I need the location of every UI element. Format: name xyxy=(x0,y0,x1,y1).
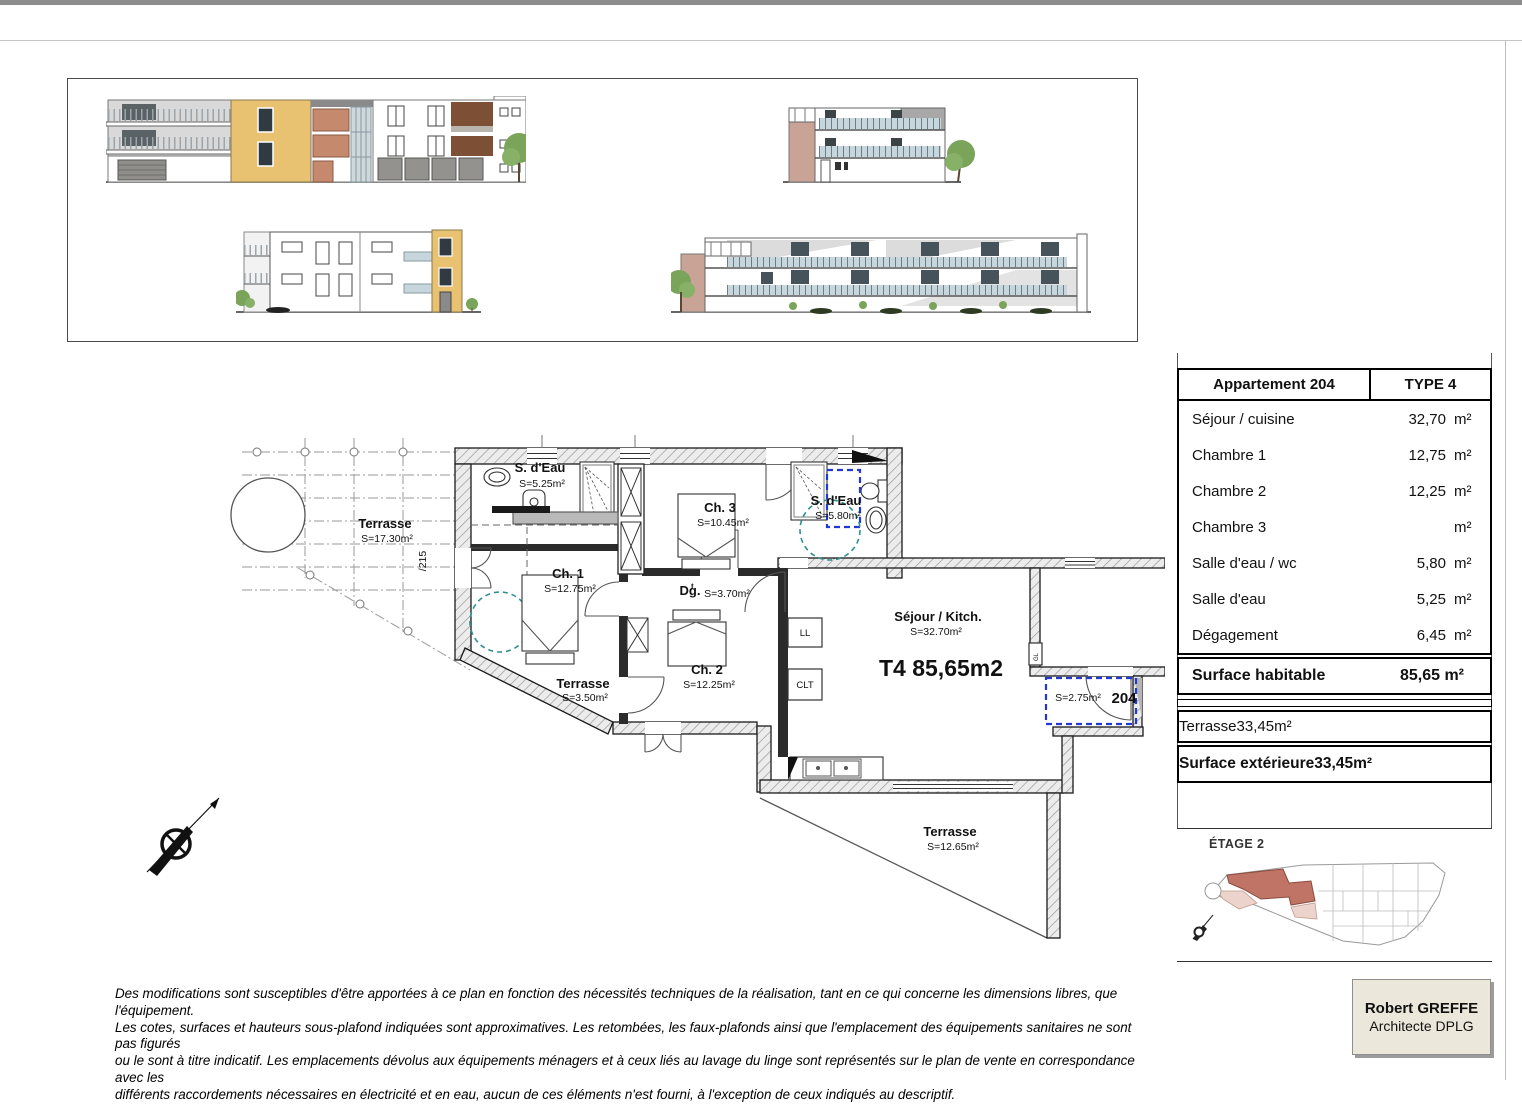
closet-clt-label: CLT xyxy=(796,680,813,691)
floor-plan: Terrasse S=17.30m² /215 S. d'Eau S=5.25m… xyxy=(230,420,1165,965)
turning-circle xyxy=(800,500,860,560)
north-arrow-icon xyxy=(135,788,235,888)
terrace-edge xyxy=(760,798,1047,938)
elevation-north-facade xyxy=(106,96,526,186)
elevation-south-facade xyxy=(236,226,481,316)
sejour-label: Séjour / Kitch. xyxy=(894,609,981,624)
ch2-area: S=12.25m² xyxy=(683,679,735,691)
sdeau1-area: S=5.25m² xyxy=(519,478,565,490)
turning-circle xyxy=(470,592,530,652)
elevation-west-facade xyxy=(671,226,1091,316)
ch3-area: S=10.45m² xyxy=(697,517,749,529)
tree-icon xyxy=(945,140,975,182)
terrasse3-label: Terrasse xyxy=(923,824,976,839)
disclaimer-line: différents raccordements nécessaires en … xyxy=(115,1087,1155,1104)
ch1-label: Ch. 1 xyxy=(552,566,584,581)
floor-label: ÉTAGE 2 xyxy=(1177,829,1492,851)
sheet-top-rule xyxy=(0,40,1522,41)
table-row: Dégagement 6,45 m² xyxy=(1179,617,1490,653)
disclaimer-line: Les cotes, surfaces et hauteurs sous-pla… xyxy=(115,1020,1155,1054)
table-row: Chambre 1 12,75 m² xyxy=(1179,437,1490,473)
terrasse3-area: S=12.65m² xyxy=(927,841,979,853)
surface-habitable-row: Surface habitable 85,65 m² xyxy=(1177,657,1492,695)
architect-plan-sheet: { "areas_table": { "title_left": "Appart… xyxy=(0,0,1522,1080)
disclaimer-line: ou le sont à titre indicatif. Les emplac… xyxy=(115,1053,1155,1087)
table-header: Appartement 204 TYPE 4 xyxy=(1177,368,1492,401)
table-row: Salle d'eau 5,25 m² xyxy=(1179,581,1490,617)
surface-exterieure-row: Surface extérieure 33,45 m² xyxy=(1177,745,1492,783)
elevations-panel xyxy=(67,78,1138,342)
terrace-deck-lines xyxy=(242,438,470,670)
terrace-row: Terrasse 33,45 m² xyxy=(1177,710,1492,743)
architect-name: Robert GREFFE xyxy=(1365,1000,1478,1017)
bed-ch2 xyxy=(668,610,726,666)
table-row: Salle d'eau / wc 5,80 m² xyxy=(1179,545,1490,581)
sdeau2-area: S=5.80m² xyxy=(815,510,861,522)
elevation-east-facade xyxy=(761,96,976,186)
terrasse2-label: Terrasse xyxy=(556,676,609,691)
table-row: Chambre 2 12,25 m² xyxy=(1179,473,1490,509)
closet-ll-label: LL xyxy=(800,628,811,639)
terrasse2-area: S=3.50m² xyxy=(562,692,608,704)
architect-title: Architecte DPLG xyxy=(1369,1018,1473,1034)
dg-sup: t xyxy=(691,582,694,591)
round-balcony xyxy=(231,478,305,552)
duct-gl-label: GL xyxy=(1034,652,1040,661)
window-top-bar xyxy=(0,0,1522,5)
ch3-label: Ch. 3 xyxy=(704,500,736,515)
legal-disclaimer: Des modifications sont susceptibles d'êt… xyxy=(115,986,1155,1104)
key-plan-drawing xyxy=(1183,851,1483,956)
apartment-type-label: T4 85,65m2 xyxy=(879,655,1003,681)
key-plan-panel: ÉTAGE 2 xyxy=(1177,828,1492,962)
table-spacer xyxy=(1177,699,1492,707)
entry-number: 204 xyxy=(1111,690,1137,707)
sdeau1-label: S. d'Eau xyxy=(515,460,566,475)
dg-area: S=3.70m² xyxy=(704,588,750,600)
kitchen-counter xyxy=(788,757,883,780)
dim-215: /215 xyxy=(417,551,429,572)
key-plan-round-balcony xyxy=(1205,883,1221,899)
ch1-area: S=12.75m² xyxy=(544,583,596,595)
key-plan-north-arrow xyxy=(1193,915,1213,941)
sejour-area: S=32.70m² xyxy=(910,626,962,638)
apartment-number-header: Appartement 204 xyxy=(1179,370,1371,399)
dg-label: Dg. xyxy=(680,583,701,598)
apartment-type-header: TYPE 4 xyxy=(1371,370,1490,399)
table-row: Chambre 3 m² xyxy=(1179,509,1490,545)
architect-stamp: Robert GREFFE Architecte DPLG xyxy=(1352,979,1491,1055)
table-row: Séjour / cuisine 32,70 m² xyxy=(1179,401,1490,437)
entry-area: S=2.75m² xyxy=(1055,692,1101,704)
sheet-right-rule xyxy=(1505,40,1506,1080)
ch2-label: Ch. 2 xyxy=(691,662,723,677)
disclaimer-line: Des modifications sont susceptibles d'êt… xyxy=(115,986,1155,1020)
areas-table: Séjour / cuisine 32,70 m² Chambre 1 12,7… xyxy=(1177,401,1492,655)
terrasse1-area: S=17.30m² xyxy=(361,533,413,545)
apartment-info-panel: Appartement 204 TYPE 4 Séjour / cuisine … xyxy=(1177,353,1492,962)
sdeau2-label: S. d'Eau xyxy=(811,493,862,508)
floor-plan-drawing: Terrasse S=17.30m² /215 S. d'Eau S=5.25m… xyxy=(230,420,1165,965)
terrasse1-label: Terrasse xyxy=(358,516,411,531)
